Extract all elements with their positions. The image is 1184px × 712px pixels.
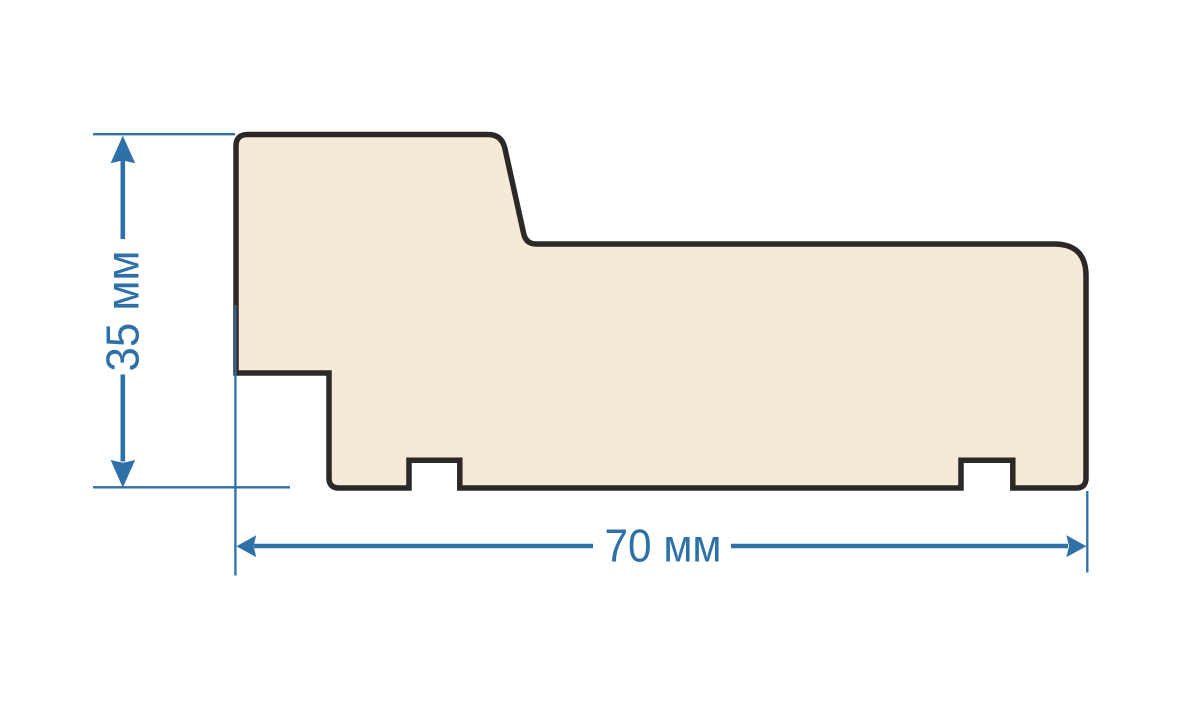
- svg-text:35 мм: 35 мм: [97, 251, 149, 372]
- svg-text:70 мм: 70 мм: [605, 520, 722, 572]
